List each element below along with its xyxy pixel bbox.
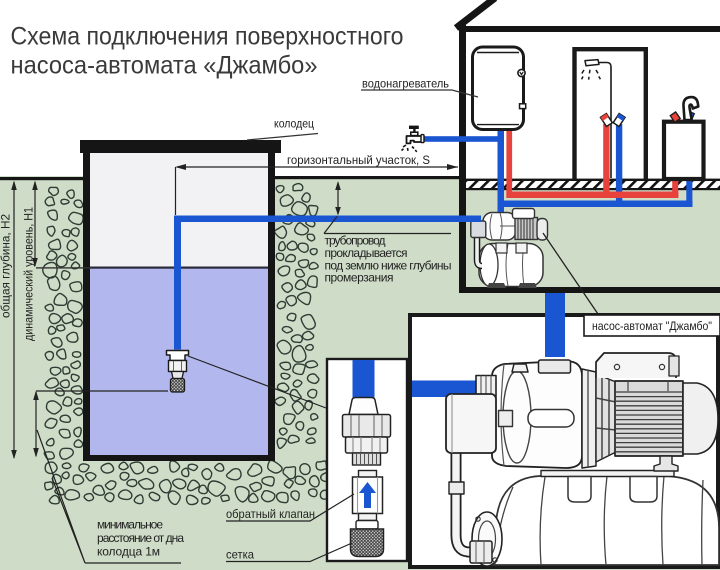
svg-text:водонагреватель: водонагреватель: [362, 77, 449, 91]
svg-text:колодца 1м: колодца 1м: [97, 545, 160, 559]
svg-text:насос-автомат "Джамбо": насос-автомат "Джамбо": [592, 319, 712, 333]
svg-text:минимальное: минимальное: [97, 518, 163, 532]
svg-text:расстояние от дна: расстояние от дна: [97, 531, 184, 545]
svg-text:Схема подключения поверхностно: Схема подключения поверхностного: [11, 23, 404, 51]
svg-text:колодец: колодец: [274, 117, 314, 131]
svg-text:сетка: сетка: [226, 548, 254, 562]
svg-text:насоса-автомата «Джамбо»: насоса-автомата «Джамбо»: [11, 52, 318, 80]
svg-text:промерзания: промерзания: [325, 271, 394, 285]
svg-text:динамический уровень, Н1: динамический уровень, Н1: [22, 207, 36, 341]
svg-text:обратный клапан: обратный клапан: [226, 507, 315, 521]
svg-text:горизонтальный участок, S: горизонтальный участок, S: [287, 153, 430, 167]
svg-text:общая глубина, Н2: общая глубина, Н2: [0, 214, 13, 318]
